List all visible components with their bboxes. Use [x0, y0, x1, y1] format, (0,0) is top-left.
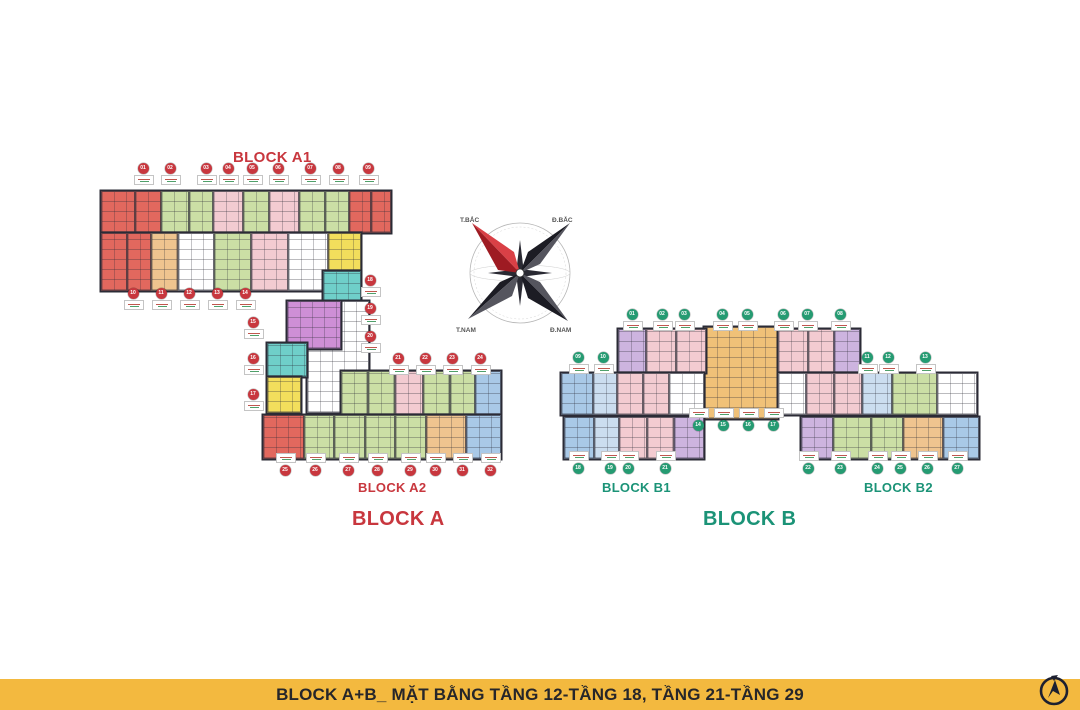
unit-number-marker: 26: [922, 463, 933, 474]
apartment-unit-teal: [267, 343, 307, 377]
apartment-unit-green: [161, 191, 189, 233]
apartment-unit-green: [325, 191, 349, 233]
floor-strip: [777, 372, 978, 416]
apartment-unit-pink: [643, 373, 669, 415]
unit-info-tag: [426, 453, 446, 463]
unit-number-marker: 01: [138, 163, 149, 174]
floor-strip: [266, 342, 308, 378]
unit-number-marker: 27: [952, 463, 963, 474]
floor-strip: [100, 190, 392, 234]
unit-number-marker: 21: [660, 463, 671, 474]
unit-number-marker: 19: [365, 303, 376, 314]
unit-info-tag: [569, 364, 589, 374]
floor-strip: [617, 328, 707, 374]
compass-se-label: Đ.NAM: [550, 327, 571, 334]
apartment-unit-blue: [561, 373, 593, 415]
unit-info-tag: [124, 300, 144, 310]
unit-number-marker: 09: [573, 352, 584, 363]
unit-number-marker: 12: [883, 352, 894, 363]
unit-number-marker: 32: [485, 465, 496, 476]
apartment-unit-red: [127, 233, 151, 291]
unit-number-marker: 14: [240, 288, 251, 299]
unit-info-tag: [714, 408, 734, 418]
unit-number-marker: 24: [475, 353, 486, 364]
apartment-unit-green: [214, 233, 251, 291]
floor-strip: [340, 370, 502, 416]
compass-sw-label: T.NAM: [456, 327, 476, 334]
apartment-unit-green: [189, 191, 213, 233]
unit-number-marker: 20: [623, 463, 634, 474]
apartment-unit-green: [368, 371, 395, 415]
apartment-unit-yellow: [267, 377, 301, 413]
unit-info-tag: [306, 453, 326, 463]
unit-number-marker: 11: [862, 352, 873, 363]
unit-number-marker: 15: [718, 420, 729, 431]
unit-number-marker: 18: [365, 275, 376, 286]
block-a-label: BLOCK A: [352, 508, 444, 531]
apartment-unit-green: [892, 373, 937, 415]
unit-number-marker: 10: [598, 352, 609, 363]
unit-info-tag: [594, 364, 614, 374]
unit-number-marker: 30: [430, 465, 441, 476]
unit-info-tag: [416, 365, 436, 375]
apartment-unit-pink: [646, 329, 676, 373]
unit-number-marker: 18: [573, 463, 584, 474]
apartment-unit-pink: [213, 191, 243, 233]
unit-number-marker: 06: [778, 309, 789, 320]
slide-title: BLOCK A+B_ MẶT BẰNG TẦNG 12-TẦNG 18, TẦN…: [276, 685, 804, 705]
unit-info-tag: [656, 451, 676, 461]
apartment-unit-pink: [269, 191, 299, 233]
floorplan-slide: 0102030405060708091011121314151617181920…: [0, 0, 1080, 710]
unit-info-tag: [948, 451, 968, 461]
compass-rose-icon: T.BẮC Đ.BẮC T.NAM Đ.NAM: [452, 214, 588, 336]
unit-number-marker: 09: [363, 163, 374, 174]
apartment-unit-white: [178, 233, 214, 291]
unit-number-marker: 26: [310, 465, 321, 476]
unit-number-marker: 31: [457, 465, 468, 476]
apartment-unit-pink: [806, 373, 834, 415]
unit-number-marker: 16: [248, 353, 259, 364]
unit-number-marker: 05: [247, 163, 258, 174]
unit-number-marker: 13: [920, 352, 931, 363]
unit-number-marker: 20: [365, 331, 376, 342]
unit-info-tag: [208, 300, 228, 310]
block-b1-label: BLOCK B1: [602, 480, 671, 495]
unit-info-tag: [329, 175, 349, 185]
unit-number-marker: 02: [657, 309, 668, 320]
unit-info-tag: [161, 175, 181, 185]
unit-info-tag: [739, 408, 759, 418]
apartment-unit-red: [349, 191, 371, 233]
unit-number-marker: 17: [248, 389, 259, 400]
unit-number-marker: 03: [201, 163, 212, 174]
unit-info-tag: [713, 321, 733, 331]
unit-info-tag: [339, 453, 359, 463]
apartment-unit-lightblue: [593, 373, 617, 415]
unit-info-tag: [653, 321, 673, 331]
apartment-unit-red: [101, 191, 135, 233]
unit-number-marker: 28: [372, 465, 383, 476]
unit-info-tag: [879, 364, 899, 374]
apartment-unit-green: [450, 371, 475, 415]
unit-number-marker: 23: [447, 353, 458, 364]
unit-info-tag: [243, 175, 263, 185]
unit-info-tag: [219, 175, 239, 185]
apartment-unit-green: [423, 371, 450, 415]
unit-info-tag: [858, 364, 878, 374]
apartment-unit-lightblue: [862, 373, 892, 415]
apartment-unit-red: [135, 191, 161, 233]
unit-number-marker: 27: [343, 465, 354, 476]
apartment-unit-pink: [778, 329, 808, 373]
unit-number-marker: 14: [693, 420, 704, 431]
unit-number-marker: 08: [333, 163, 344, 174]
unit-info-tag: [269, 175, 289, 185]
unit-number-marker: 13: [212, 288, 223, 299]
unit-number-marker: 22: [803, 463, 814, 474]
unit-info-tag: [764, 408, 784, 418]
unit-number-marker: 01: [627, 309, 638, 320]
unit-info-tag: [738, 321, 758, 331]
unit-info-tag: [359, 175, 379, 185]
floor-strip: [560, 372, 705, 416]
unit-info-tag: [799, 451, 819, 461]
apartment-unit-green: [299, 191, 325, 233]
apartment-unit-red: [101, 233, 127, 291]
unit-number-marker: 16: [743, 420, 754, 431]
compass-ne-label: Đ.BẮC: [552, 215, 573, 224]
apartment-unit-pink: [617, 373, 643, 415]
unit-number-marker: 21: [393, 353, 404, 364]
unit-info-tag: [443, 365, 463, 375]
unit-number-marker: 15: [248, 317, 259, 328]
apartment-unit-green: [243, 191, 269, 233]
unit-info-tag: [244, 329, 264, 339]
unit-info-tag: [774, 321, 794, 331]
unit-info-tag: [244, 401, 264, 411]
unit-number-marker: 25: [895, 463, 906, 474]
unit-info-tag: [918, 451, 938, 461]
unit-info-tag: [798, 321, 818, 331]
compass-nw-label: T.BẮC: [460, 215, 479, 224]
apartment-unit-tan: [151, 233, 178, 291]
unit-number-marker: 10: [128, 288, 139, 299]
unit-number-marker: 24: [872, 463, 883, 474]
unit-number-marker: 22: [420, 353, 431, 364]
apartment-unit-pink: [251, 233, 288, 291]
unit-number-marker: 12: [184, 288, 195, 299]
unit-info-tag: [361, 287, 381, 297]
unit-info-tag: [301, 175, 321, 185]
unit-info-tag: [197, 175, 217, 185]
unit-info-tag: [891, 451, 911, 461]
apartment-unit-white: [937, 373, 977, 415]
unit-number-marker: 07: [305, 163, 316, 174]
unit-info-tag: [134, 175, 154, 185]
unit-info-tag: [689, 408, 709, 418]
unit-info-tag: [389, 365, 409, 375]
block-b-label: BLOCK B: [703, 508, 796, 531]
unit-info-tag: [361, 343, 381, 353]
unit-number-marker: 02: [165, 163, 176, 174]
apartment-unit-orange: [704, 327, 778, 419]
apartment-unit-pink: [808, 329, 834, 373]
apartment-unit-pink: [676, 329, 706, 373]
unit-info-tag: [675, 321, 695, 331]
apartment-unit-lavender: [618, 329, 646, 373]
unit-info-tag: [236, 300, 256, 310]
floor-strip: [777, 328, 861, 374]
floor-strip: [703, 326, 779, 420]
unit-info-tag: [401, 453, 421, 463]
unit-info-tag: [831, 451, 851, 461]
unit-number-marker: 25: [280, 465, 291, 476]
unit-number-marker: 04: [717, 309, 728, 320]
unit-number-marker: 17: [768, 420, 779, 431]
apartment-unit-pink: [395, 371, 423, 415]
unit-info-tag: [368, 453, 388, 463]
apartment-unit-pink: [834, 373, 862, 415]
unit-info-tag: [481, 453, 501, 463]
unit-info-tag: [868, 451, 888, 461]
apartment-unit-lavender: [834, 329, 860, 373]
unit-info-tag: [619, 451, 639, 461]
unit-number-marker: 05: [742, 309, 753, 320]
block-a2-label: BLOCK A2: [358, 480, 426, 495]
unit-number-marker: 11: [156, 288, 167, 299]
unit-info-tag: [471, 365, 491, 375]
cursor-logo-icon: [1036, 672, 1072, 708]
unit-number-marker: 06: [273, 163, 284, 174]
unit-info-tag: [361, 315, 381, 325]
apartment-unit-blue: [475, 371, 501, 415]
unit-number-marker: 04: [223, 163, 234, 174]
unit-info-tag: [152, 300, 172, 310]
unit-info-tag: [244, 365, 264, 375]
unit-info-tag: [916, 364, 936, 374]
unit-number-marker: 07: [802, 309, 813, 320]
unit-info-tag: [623, 321, 643, 331]
unit-number-marker: 03: [679, 309, 690, 320]
unit-info-tag: [453, 453, 473, 463]
unit-info-tag: [569, 451, 589, 461]
unit-number-marker: 29: [405, 465, 416, 476]
unit-number-marker: 08: [835, 309, 846, 320]
block-a1-label: BLOCK A1: [233, 149, 312, 166]
apartment-unit-red: [371, 191, 391, 233]
unit-number-marker: 19: [605, 463, 616, 474]
unit-info-tag: [276, 453, 296, 463]
apartment-unit-green: [341, 371, 368, 415]
unit-number-marker: 23: [835, 463, 846, 474]
block-b2-label: BLOCK B2: [864, 480, 933, 495]
unit-info-tag: [831, 321, 851, 331]
footer-title-bar: BLOCK A+B_ MẶT BẰNG TẦNG 12-TẦNG 18, TẦN…: [0, 679, 1080, 710]
unit-info-tag: [601, 451, 621, 461]
floor-strip: [266, 376, 302, 414]
unit-info-tag: [180, 300, 200, 310]
